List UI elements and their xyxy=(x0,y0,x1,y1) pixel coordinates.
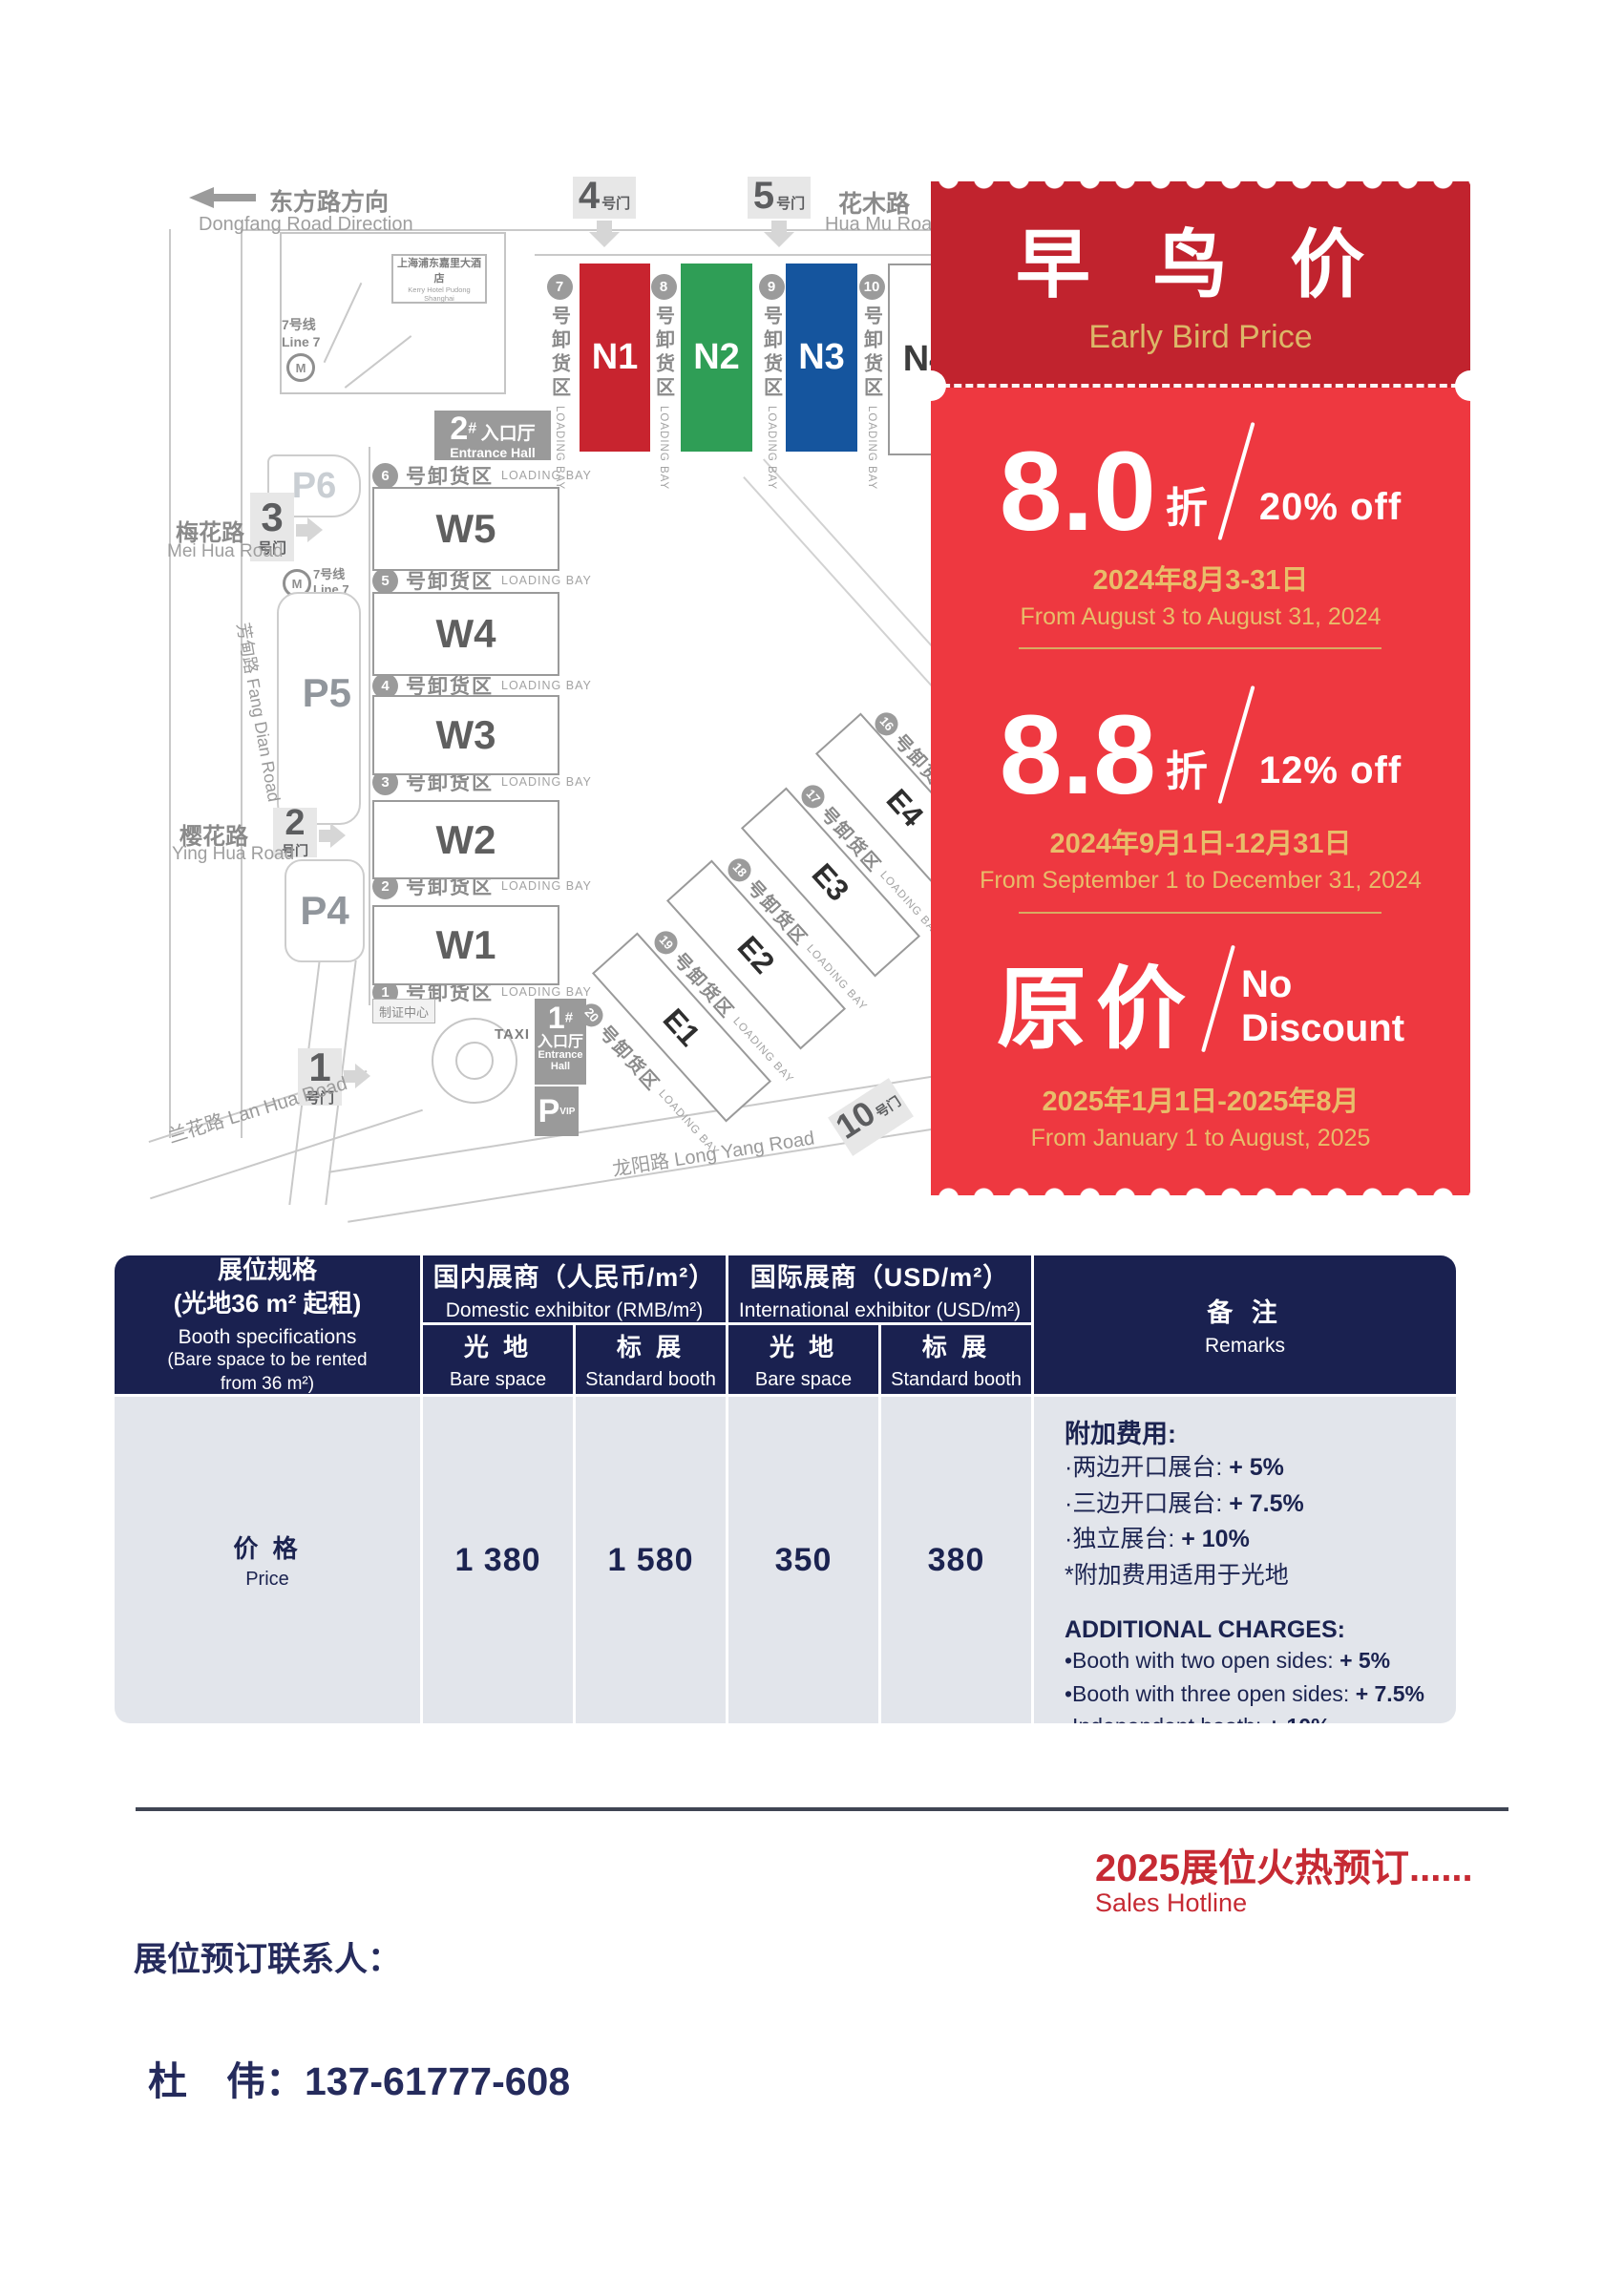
hall-w3: W3 xyxy=(372,695,559,775)
ticket-dashed-divider xyxy=(931,384,1470,388)
bare-en: Bare space xyxy=(755,1369,852,1391)
parking-p4-label: P4 xyxy=(300,888,348,934)
bay-7-label-zh: 号卸货区 xyxy=(546,306,574,401)
cell-domestic-standard-price: 1 580 xyxy=(576,1397,726,1723)
remarks-zh-line: ·两边开口展台: + 5% xyxy=(1065,1450,1442,1487)
remark-text: *附加费用适用于光地 xyxy=(1065,1562,1289,1589)
parking-vip-sub: VIP xyxy=(559,1107,575,1117)
bay-5-label-en: LOADING BAY xyxy=(501,574,592,587)
international-en: International exhibitor (USD/m²) xyxy=(739,1299,1021,1322)
badge-center-label: 制证中心 xyxy=(379,1002,429,1021)
row-price-label: 价 格 Price xyxy=(115,1397,420,1723)
contact-phone: 137-61777-608 xyxy=(305,2059,570,2103)
road-label-yinghua-en: Ying Hua Road xyxy=(172,844,294,865)
loading-bay-8: 8 号卸货区 LOADING BAY xyxy=(649,274,678,490)
col-booth-spec-header: 展位规格 (光地36 m² 起租) Booth specifications (… xyxy=(115,1255,420,1394)
remarks-zh-line: ·三边开口展台: + 7.5% xyxy=(1065,1487,1442,1523)
remarks-en-title: ADDITIONAL CHARGES: xyxy=(1065,1616,1442,1644)
parking-p5: P5 xyxy=(277,592,361,825)
hall-e2-label: E2 xyxy=(730,929,782,981)
arrow-stem xyxy=(214,194,256,201)
parking-p5-label: P5 xyxy=(303,670,351,716)
entrance-2-hash: # xyxy=(468,421,476,437)
tier3-no-discount-line2: Discount xyxy=(1241,1006,1404,1050)
ticket-header: 早 鸟 价 Early Bird Price xyxy=(931,197,1470,388)
divider-line xyxy=(136,1807,1508,1811)
roundabout-inner xyxy=(455,1042,494,1080)
value-domestic-standard: 1 580 xyxy=(607,1542,693,1579)
parking-p4: P4 xyxy=(285,859,365,962)
tier3-date-en: From January 1 to August, 2025 xyxy=(931,1125,1470,1152)
ticket-perforation-bottom-icon xyxy=(931,1180,1470,1195)
spec-zh-2: (光地36 m² 起租) xyxy=(174,1287,361,1320)
remark-text: ·三边开口展台: xyxy=(1065,1490,1229,1517)
value-international-bare: 350 xyxy=(775,1542,833,1579)
parking-vip: PVIP xyxy=(535,1086,579,1136)
gold-divider xyxy=(1019,647,1381,649)
slash-icon xyxy=(1217,686,1255,804)
remark-value: + 5% xyxy=(1339,1648,1390,1673)
dongfang-arrow-icon xyxy=(189,187,256,208)
entrance-1-hash: # xyxy=(565,1010,573,1026)
bay-6-label-zh: 号卸货区 xyxy=(406,461,494,490)
metro-label: 7号线 Line 7 xyxy=(282,316,320,350)
price-label-en: Price xyxy=(245,1569,289,1591)
remark-text: ·两边开口展台: xyxy=(1065,1454,1229,1481)
tier2-discount-unit: 折 xyxy=(1166,737,1208,798)
loading-bay-6: 6 号卸货区 LOADING BAY xyxy=(372,461,592,490)
entrance-1-zh: 入口厅 xyxy=(535,1035,586,1051)
bay-9-number: 9 xyxy=(759,274,785,300)
hotel-label-box: 上海浦东嘉里大酒店 Kerry Hotel Pudong Shanghai xyxy=(391,254,487,304)
ticket-tier-3: 原价 No Discount 2025年1月1日-2025年8月 From Ja… xyxy=(931,943,1470,1152)
early-bird-ticket: 早 鸟 价 Early Bird Price 8.0 折 20% off 202… xyxy=(931,181,1470,1195)
gold-divider xyxy=(1019,912,1381,914)
metro-line-zh: 7号线 xyxy=(282,316,320,333)
remarks-en-line: •Independent booth: + 10% xyxy=(1065,1710,1442,1723)
ticket-tier-2: 8.8 折 12% off 2024年9月1日-12月31日 From Sept… xyxy=(931,684,1470,895)
entrance-2-en: Entrance Hall xyxy=(434,445,551,460)
hall-w3-label: W3 xyxy=(436,712,496,758)
tier1-percent-off: 20% off xyxy=(1259,486,1402,529)
flyer-page: 东方路方向 Dongfang Road Direction 4 号门 5 号门 … xyxy=(0,0,1624,2278)
tier2-date-en: From September 1 to December 31, 2024 xyxy=(931,867,1470,895)
bay-8-label-en: LOADING BAY xyxy=(658,406,669,490)
gate-3-arrow-icon xyxy=(296,517,323,542)
hall-w1: W1 xyxy=(372,905,559,985)
bay-4-label-en: LOADING BAY xyxy=(501,679,592,692)
hall-n3: N3 xyxy=(786,264,857,452)
gate-2-number: 2 xyxy=(285,805,305,841)
taxi-label: TAXI xyxy=(495,1026,530,1043)
gate-5-number: 5 xyxy=(753,177,774,215)
ticket-body: 8.0 折 20% off 2024年8月3-31日 From August 3… xyxy=(931,388,1470,1180)
remarks-en-line: •Booth with two open sides: + 5% xyxy=(1065,1644,1442,1677)
gate-3-number: 3 xyxy=(261,497,283,538)
subcol-international-bare: 光 地 Bare space xyxy=(728,1325,878,1394)
remarks-content: 附加费用: ·两边开口展台: + 5% ·三边开口展台: + 7.5% ·独立展… xyxy=(1065,1413,1442,1723)
road-label-meihua-en: Mei Hua Road xyxy=(167,541,283,562)
group-domestic-header: 国内展商（人民币/m²） Domestic exhibitor (RMB/m²) xyxy=(423,1255,726,1322)
hall-w2-label: W2 xyxy=(436,817,496,863)
gate-10-number: 10 xyxy=(831,1095,881,1145)
contact-section-label: 展位预订联系人： xyxy=(134,1932,401,1981)
spec-en-2: (Bare space to be rented xyxy=(167,1349,367,1373)
loading-bay-10: 10 号卸货区 LOADING BAY xyxy=(857,274,886,490)
standard-en: Standard booth xyxy=(585,1369,716,1391)
tier1-date-zh: 2024年8月3-31日 xyxy=(931,558,1470,598)
domestic-zh: 国内展商（人民币/m²） xyxy=(433,1256,716,1294)
remark-text: •Booth with two open sides: xyxy=(1065,1648,1339,1673)
hall-n2: N2 xyxy=(681,264,752,452)
remarks-zh: 备 注 xyxy=(1207,1292,1283,1329)
ticket-title-zh: 早 鸟 价 xyxy=(931,227,1470,302)
gate-4-number: 4 xyxy=(579,177,600,215)
road-label-dongfang-zh: 东方路方向 xyxy=(269,183,389,218)
value-domestic-bare: 1 380 xyxy=(454,1542,540,1579)
gate-5-arrow-icon xyxy=(764,221,794,247)
entrance-1-number: 1 xyxy=(548,1001,565,1035)
gate-5: 5 号门 xyxy=(748,177,811,219)
contact-name: 杜 伟： xyxy=(148,2059,305,2103)
bay-8-label-zh: 号卸货区 xyxy=(650,306,678,401)
remark-value: + 7.5% xyxy=(1356,1681,1424,1706)
hall-e1-label: E1 xyxy=(656,1002,707,1053)
tier1-date-en: From August 3 to August 31, 2024 xyxy=(931,603,1470,631)
spacer xyxy=(1065,1593,1442,1616)
entrance-1-en2: Hall xyxy=(535,1062,586,1073)
gate-4-arrow-icon xyxy=(589,221,620,247)
standard-en: Standard booth xyxy=(891,1369,1022,1391)
remarks-zh-line: *附加费用适用于光地 xyxy=(1065,1558,1442,1594)
gate-4: 4 号门 xyxy=(573,177,636,219)
hall-w1-label: W1 xyxy=(436,922,496,968)
bare-zh: 光 地 xyxy=(770,1328,837,1363)
hall-e3-label: E3 xyxy=(805,856,856,908)
hall-w2: W2 xyxy=(372,800,559,879)
tier3-no-discount: No Discount xyxy=(1241,962,1404,1050)
hall-n3-label: N3 xyxy=(798,337,845,378)
tier3-original-price: 原价 xyxy=(997,964,1195,1054)
remark-value: + 5% xyxy=(1229,1454,1284,1481)
gate-5-suffix: 号门 xyxy=(776,193,805,213)
metro-line-en: Line 7 xyxy=(282,333,320,350)
cell-international-bare-price: 350 xyxy=(728,1397,878,1723)
bay-1-label-en: LOADING BAY xyxy=(501,985,592,999)
subcol-domestic-standard: 标 展 Standard booth xyxy=(576,1325,726,1394)
remarks-zh-title: 附加费用: xyxy=(1065,1413,1442,1450)
subcol-international-standard: 标 展 Standard booth xyxy=(881,1325,1031,1394)
col-remarks-header: 备 注 Remarks xyxy=(1034,1255,1456,1394)
road-line xyxy=(169,229,171,1138)
entrance-2-zh: 入口厅 xyxy=(481,424,536,444)
spec-en-1: Booth specifications xyxy=(179,1326,357,1349)
tier1-discount-number: 8.0 xyxy=(1000,443,1156,542)
bay-5-number: 5 xyxy=(372,568,398,594)
entrance-hall-2: 2# 入口厅 Entrance Hall xyxy=(434,411,551,460)
group-international-header: 国际展商（USD/m²） International exhibitor (US… xyxy=(728,1255,1031,1322)
tier2-discount-number: 8.8 xyxy=(1000,707,1156,806)
standard-zh: 标 展 xyxy=(922,1328,990,1363)
entrance-2-number: 2 xyxy=(450,411,468,447)
standard-zh: 标 展 xyxy=(617,1328,685,1363)
slash-icon xyxy=(1201,945,1235,1053)
tier2-date-zh: 2024年9月1日-12月31日 xyxy=(931,821,1470,861)
cell-domestic-bare-price: 1 380 xyxy=(423,1397,573,1723)
gate-2-arrow-icon xyxy=(319,823,346,848)
price-label-zh: 价 格 xyxy=(233,1529,301,1565)
cell-international-standard-price: 380 xyxy=(881,1397,1031,1723)
bay-6-label-en: LOADING BAY xyxy=(501,469,592,482)
ticket-perforation-top-icon xyxy=(931,181,1470,197)
sales-hotline-label: Sales Hotline xyxy=(1095,1888,1247,1918)
bay-2-label-en: LOADING BAY xyxy=(501,879,592,893)
hall-n1-label: N1 xyxy=(592,337,639,378)
remark-text: ·独立展台: xyxy=(1065,1526,1181,1552)
hall-n1: N1 xyxy=(580,264,650,452)
bay-10-number: 10 xyxy=(859,274,885,300)
metro-line-zh: 7号线 xyxy=(313,567,349,582)
hall-w5-label: W5 xyxy=(436,506,496,552)
hall-e4-label: E4 xyxy=(879,782,931,833)
bay-6-number: 6 xyxy=(372,463,398,489)
road-line xyxy=(369,447,370,1005)
loading-bay-9: 9 号卸货区 LOADING BAY xyxy=(757,274,786,490)
hotel-name-zh: 上海浦东嘉里大酒店 xyxy=(393,255,485,285)
metro-icon: M xyxy=(286,353,315,382)
hotel-name-en: Kerry Hotel Pudong Shanghai xyxy=(393,285,485,303)
bare-zh: 光 地 xyxy=(464,1328,532,1363)
remark-text: •Booth with three open sides: xyxy=(1065,1681,1356,1706)
remarks-en-line: •Booth with three open sides: + 7.5% xyxy=(1065,1677,1442,1711)
remark-value: + 10% xyxy=(1181,1526,1250,1552)
bay-9-label-zh: 号卸货区 xyxy=(758,306,786,401)
gate-4-suffix: 号门 xyxy=(601,193,630,213)
hall-w5: W5 xyxy=(372,487,559,571)
remark-value: + 10% xyxy=(1268,1714,1331,1723)
promo-heading: 2025展位火热预订...... xyxy=(1095,1837,1473,1892)
badge-center-box: 制证中心 xyxy=(372,999,435,1023)
slash-icon xyxy=(1217,422,1255,540)
bay-9-label-en: LOADING BAY xyxy=(766,406,777,490)
bare-en: Bare space xyxy=(450,1369,546,1391)
price-table: 展位规格 (光地36 m² 起租) Booth specifications (… xyxy=(115,1255,1456,1723)
spec-zh-1: 展位规格 xyxy=(218,1255,317,1287)
road-label-huamu-en: Hua Mu Road xyxy=(825,214,942,236)
bay-10-label-zh: 号卸货区 xyxy=(858,306,886,401)
domestic-en: Domestic exhibitor (RMB/m²) xyxy=(446,1299,704,1322)
remarks-en: Remarks xyxy=(1205,1335,1285,1358)
ticket-title-en: Early Bird Price xyxy=(931,319,1470,356)
tier2-percent-off: 12% off xyxy=(1259,749,1402,792)
hall-n2-label: N2 xyxy=(693,337,740,378)
tier3-date-zh: 2025年1月1日-2025年8月 xyxy=(931,1079,1470,1119)
tier1-discount-unit: 折 xyxy=(1166,474,1208,535)
remark-value: + 7.5% xyxy=(1229,1490,1304,1517)
parking-vip-p: P xyxy=(538,1093,560,1130)
bay-3-label-en: LOADING BAY xyxy=(501,775,592,789)
ticket-tier-1: 8.0 折 20% off 2024年8月3-31日 From August 3… xyxy=(931,420,1470,631)
value-international-standard: 380 xyxy=(928,1542,985,1579)
international-zh: 国际展商（USD/m²） xyxy=(750,1256,1010,1294)
spec-en-3: from 36 m²) xyxy=(221,1373,314,1397)
remark-text: •Independent booth: xyxy=(1065,1714,1268,1723)
bay-10-label-en: LOADING BAY xyxy=(866,406,877,490)
contact-line: 杜 伟：137-61777-608 xyxy=(148,2049,570,2106)
bay-7-number: 7 xyxy=(547,274,573,300)
subcol-domestic-bare: 光 地 Bare space xyxy=(423,1325,573,1394)
hall-w4: W4 xyxy=(372,592,559,676)
road-line xyxy=(535,254,931,256)
parking-p6-label: P6 xyxy=(292,466,336,507)
arrow-head xyxy=(189,187,214,208)
tier3-no-discount-line1: No xyxy=(1241,962,1404,1006)
road-label-lanhua: 兰花路 Lan Hua Road xyxy=(164,1067,350,1149)
bay-8-number: 8 xyxy=(651,274,677,300)
hall-w4-label: W4 xyxy=(436,611,496,657)
remarks-zh-line: ·独立展台: + 10% xyxy=(1065,1522,1442,1558)
